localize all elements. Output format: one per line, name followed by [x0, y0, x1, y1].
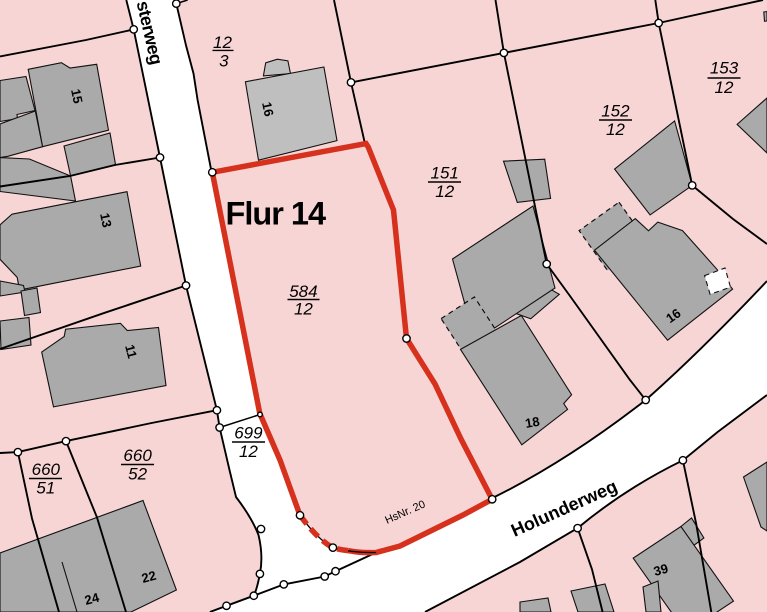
svg-text:12: 12 — [294, 300, 313, 319]
svg-text:12: 12 — [435, 182, 454, 201]
svg-text:16: 16 — [259, 101, 277, 118]
svg-text:660: 660 — [123, 446, 152, 465]
svg-text:660: 660 — [32, 460, 61, 479]
svg-text:699: 699 — [234, 424, 263, 443]
svg-text:51: 51 — [36, 479, 55, 498]
svg-text:153: 153 — [710, 59, 739, 78]
svg-text:15: 15 — [68, 88, 86, 105]
svg-text:151: 151 — [431, 164, 459, 183]
svg-text:12: 12 — [213, 33, 232, 52]
svg-text:584: 584 — [289, 282, 317, 301]
svg-text:12: 12 — [239, 442, 258, 461]
svg-text:152: 152 — [601, 102, 630, 121]
svg-text:12: 12 — [606, 120, 625, 139]
svg-text:52: 52 — [128, 465, 147, 484]
svg-text:18: 18 — [524, 414, 541, 431]
svg-text:12: 12 — [715, 78, 734, 97]
svg-text:3: 3 — [219, 52, 229, 71]
svg-text:13: 13 — [97, 212, 115, 229]
svg-text:Flur 14: Flur 14 — [226, 196, 326, 232]
